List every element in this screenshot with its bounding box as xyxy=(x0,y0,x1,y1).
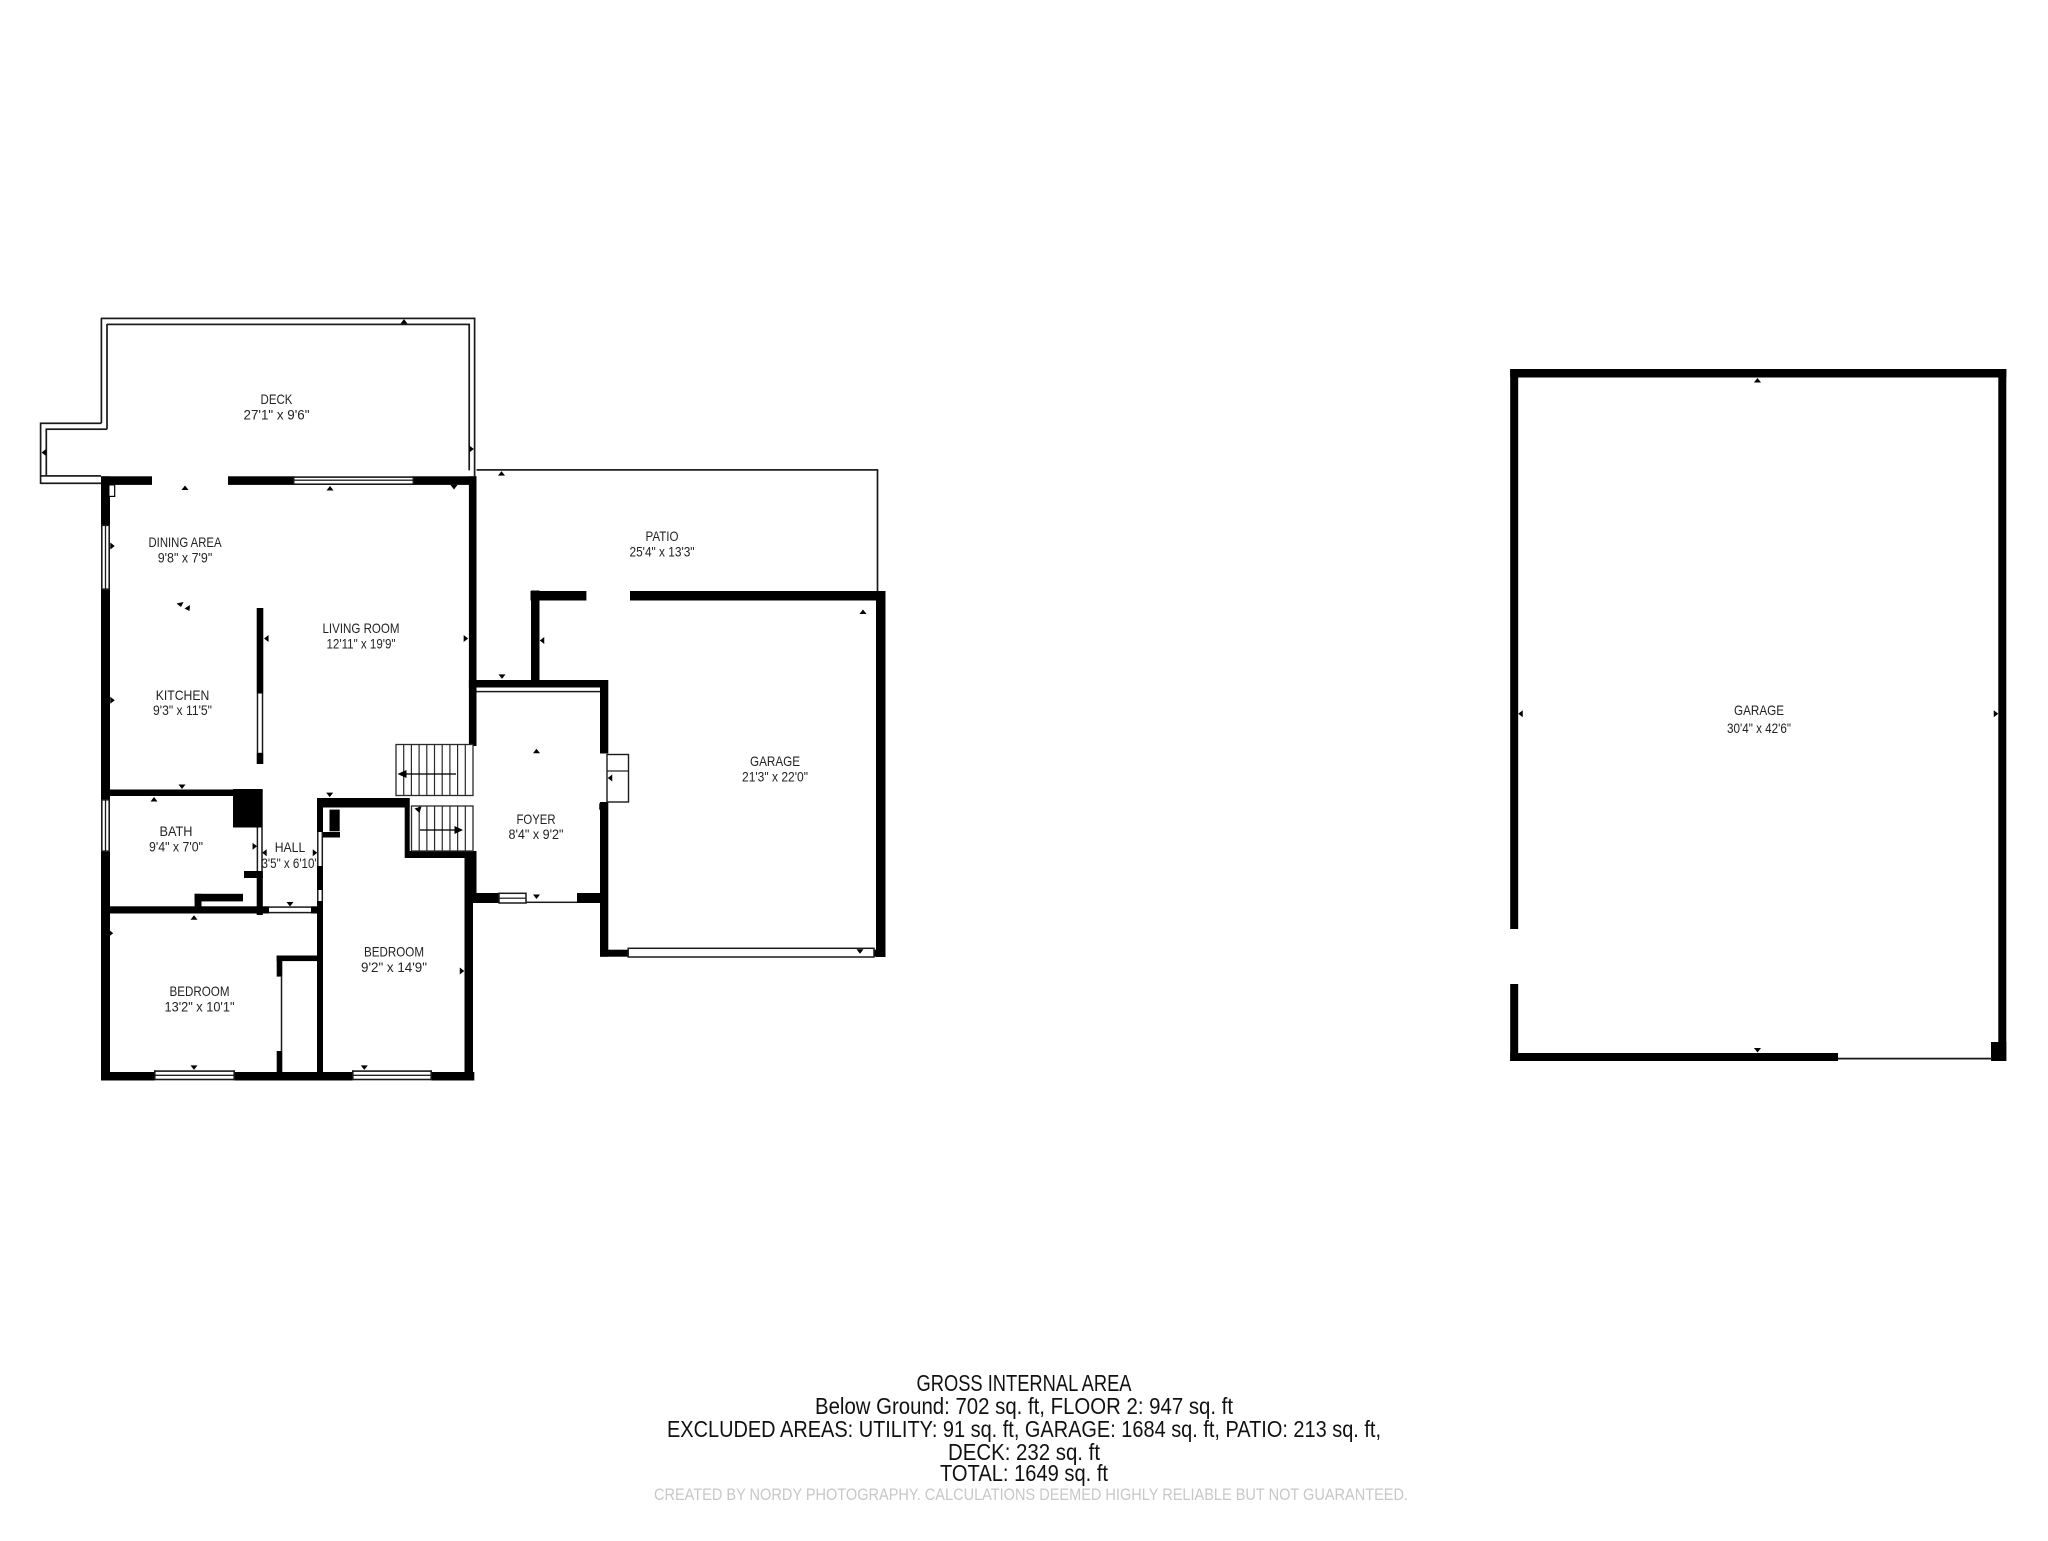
svg-text:13'2" x 10'1": 13'2" x 10'1" xyxy=(165,999,235,1015)
svg-text:HALL: HALL xyxy=(275,839,306,855)
svg-text:12'11" x 19'9": 12'11" x 19'9" xyxy=(327,636,396,652)
svg-text:30'4" x 42'6": 30'4" x 42'6" xyxy=(1727,720,1791,736)
svg-text:CREATED BY NORDY PHOTOGRAPHY.: CREATED BY NORDY PHOTOGRAPHY. CALCULATIO… xyxy=(654,1485,1408,1504)
svg-text:DECK: DECK xyxy=(261,391,294,407)
svg-text:9'3" x 11'5": 9'3" x 11'5" xyxy=(153,702,212,718)
svg-text:GARAGE: GARAGE xyxy=(1734,702,1784,718)
svg-text:BEDROOM: BEDROOM xyxy=(170,983,230,999)
svg-text:GARAGE: GARAGE xyxy=(750,753,800,769)
svg-text:BEDROOM: BEDROOM xyxy=(364,944,424,960)
svg-text:TOTAL: 1649 sq. ft: TOTAL: 1649 sq. ft xyxy=(940,1460,1109,1486)
svg-text:9'8" x 7'9": 9'8" x 7'9" xyxy=(158,550,213,566)
svg-text:9'2" x 14'9": 9'2" x 14'9" xyxy=(361,959,427,975)
svg-text:PATIO: PATIO xyxy=(646,528,679,544)
svg-text:27'1" x 9'6": 27'1" x 9'6" xyxy=(244,407,310,423)
svg-text:8'4" x 9'2": 8'4" x 9'2" xyxy=(509,826,564,842)
svg-text:21'3" x 22'0": 21'3" x 22'0" xyxy=(742,769,808,785)
svg-text:25'4" x 13'3": 25'4" x 13'3" xyxy=(630,544,695,560)
svg-text:LIVING ROOM: LIVING ROOM xyxy=(323,620,400,636)
svg-text:KITCHEN: KITCHEN xyxy=(156,687,210,703)
svg-text:3'5" x 6'10": 3'5" x 6'10" xyxy=(262,855,319,871)
svg-text:FOYER: FOYER xyxy=(517,811,556,827)
svg-text:DINING AREA: DINING AREA xyxy=(149,534,223,550)
svg-text:BATH: BATH xyxy=(160,823,193,839)
svg-text:9'4" x 7'0": 9'4" x 7'0" xyxy=(149,839,203,855)
